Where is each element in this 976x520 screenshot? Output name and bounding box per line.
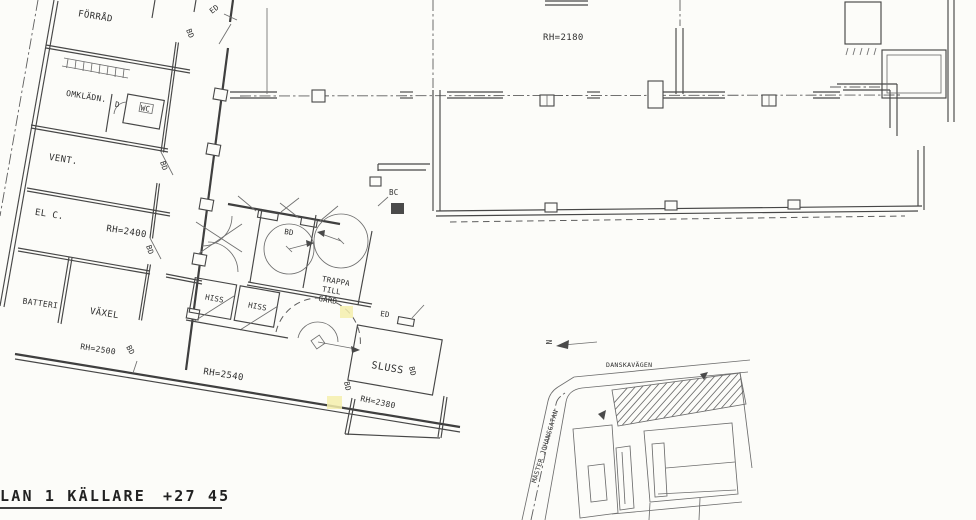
door-mark-bd6: BD (342, 381, 353, 392)
room-label-wc: WC (140, 103, 151, 113)
scanned-floor-plan-page: FÖRRÅD OMKLÄDN. D WC VENT. EL C. RH=2400… (0, 0, 976, 520)
door-mark-bd5: BD (284, 227, 295, 237)
room-label-hiss2: HISS (247, 300, 267, 312)
door-mark-ed1: ED (208, 3, 221, 16)
door-mark-bd2: BD (158, 160, 170, 172)
door-mark-bd1: BD (184, 27, 196, 39)
main-hall: RH=2180 BC (230, 0, 954, 222)
height-label-rh2180: RH=2180 (543, 33, 584, 43)
floor-plan-canvas: FÖRRÅD OMKLÄDN. D WC VENT. EL C. RH=2400… (0, 0, 976, 520)
room-label-batteri: BATTERI (22, 297, 59, 311)
highlight-mark-1 (340, 306, 353, 318)
room-label-dusch: D (114, 100, 120, 110)
door-mark-bd7: BD (407, 366, 418, 377)
height-label-rh2500: RH=2500 (80, 342, 117, 356)
site-plan-inset: N DANSKAVÄGEN MÄSTER JOHANSGATAN (522, 340, 764, 520)
north-arrow-icon: N (545, 340, 597, 349)
highlight-mark-2 (327, 396, 342, 409)
door-mark-bd4: BD (124, 344, 137, 357)
room-label-forrad: FÖRRÅD (77, 7, 113, 24)
stair-label-line3: GÅRD (318, 294, 338, 306)
title-block: LAN 1 KÄLLARE +27 45 (0, 486, 230, 508)
door-mark-bc: BC (389, 188, 398, 197)
door-mark-ed2: ED (380, 309, 391, 319)
room-label-hiss1: HISS (204, 292, 224, 304)
room-label-omkladn: OMKLÄDN. (65, 88, 107, 104)
room-label-vaxel: VÄXEL (89, 306, 119, 321)
stair-core: BD HISS HISS TRAPPA TILL (186, 196, 447, 438)
room-label-vent: VENT. (48, 153, 78, 167)
height-label-rh2400: RH=2400 (106, 224, 148, 240)
door-mark-bd3: BD (144, 244, 156, 256)
height-label-rh2380: RH=2380 (360, 394, 397, 410)
north-mark-label: N (545, 340, 554, 345)
column-post (391, 203, 404, 214)
hatched-building (590, 368, 764, 430)
plan-elevation: +27 45 (163, 487, 230, 505)
room-label-sluss: SLUSS (370, 360, 404, 376)
height-label-rh2540: RH=2540 (203, 367, 245, 383)
street-label-left: MÄSTER JOHANSGATAN (529, 409, 560, 484)
street-label-top: DANSKAVÄGEN (606, 360, 652, 369)
plan-title: LAN 1 KÄLLARE (0, 486, 146, 505)
room-label-el-central: EL C. (34, 208, 64, 222)
